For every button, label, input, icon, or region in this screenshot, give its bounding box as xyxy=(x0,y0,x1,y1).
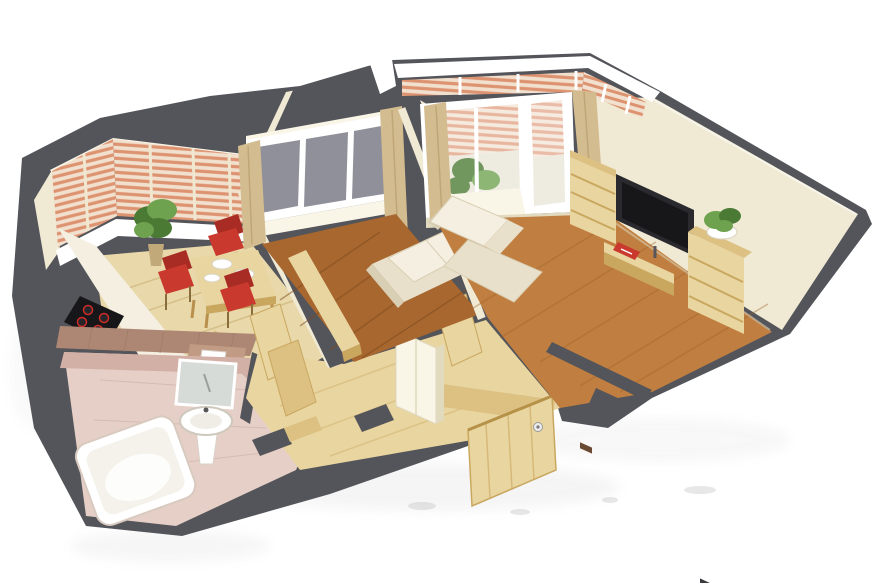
bathroom-mirror-icon xyxy=(176,360,236,408)
floorplan-svg xyxy=(0,0,880,583)
bookshelf-icon xyxy=(688,208,752,583)
apartment-3d-floorplan xyxy=(0,0,880,583)
books xyxy=(700,578,726,583)
floorplan-figure xyxy=(0,0,880,583)
